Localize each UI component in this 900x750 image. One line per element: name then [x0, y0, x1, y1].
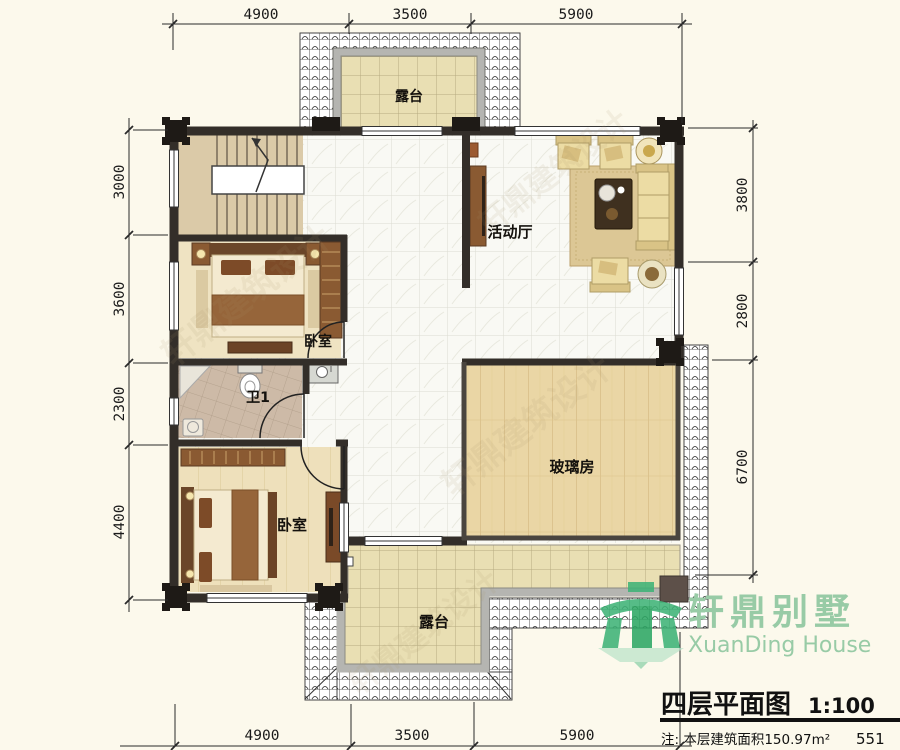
window	[340, 503, 349, 552]
bed-lower	[181, 487, 277, 592]
dim-bottom-3: 5900	[560, 728, 595, 744]
stairwell	[178, 133, 304, 235]
window	[675, 268, 684, 335]
window	[170, 398, 179, 425]
dim-top-1: 4900	[244, 7, 279, 23]
label-activity-hall: 活动厅	[487, 223, 532, 241]
dim-top-2: 3500	[393, 7, 428, 23]
dim-left-3: 2300	[112, 387, 128, 422]
dim-left-1: 3000	[112, 165, 128, 200]
window	[207, 594, 307, 603]
title-underline	[660, 718, 900, 722]
window	[170, 150, 179, 207]
label-bedroom-upper: 卧室	[304, 333, 332, 350]
bathroom	[178, 363, 302, 438]
dim-bottom-2: 3500	[395, 728, 430, 744]
area-note: 注: 本层建筑面积150.97m²	[661, 732, 830, 748]
bedroom-lower	[178, 447, 341, 592]
dim-bottom-1: 4900	[245, 728, 280, 744]
drawing-title: 四层平面图	[661, 690, 791, 720]
planter	[638, 260, 666, 288]
label-terrace-bottom: 露台	[419, 613, 449, 631]
wardrobe-lower	[181, 449, 285, 466]
floor-plan-sheet: 轩鼎建筑设计 轩鼎建筑设计 轩鼎建筑设计 轩鼎建筑设计 露台 活动厅 卧室 卫1…	[0, 0, 900, 750]
label-bathroom: 卫1	[246, 390, 270, 406]
sheet-number: 551	[856, 730, 885, 748]
dim-right-2: 2800	[735, 294, 751, 329]
chimney-block	[660, 576, 688, 602]
tv-cabinet-lower	[326, 492, 341, 562]
drawing-scale: 1:100	[808, 694, 875, 718]
floor-plan-drawing: 轩鼎建筑设计 轩鼎建筑设计 轩鼎建筑设计 轩鼎建筑设计 露台 活动厅 卧室 卫1…	[0, 0, 900, 750]
dim-left-2: 3600	[112, 282, 128, 317]
dim-right-1: 3800	[735, 178, 751, 213]
armchair	[590, 258, 630, 292]
window	[365, 537, 442, 546]
title-block: 四层平面图 1:100 注: 本层建筑面积150.97m² 551	[660, 690, 900, 748]
logo-name-cn: 轩鼎别墅	[688, 592, 856, 633]
stair-landing	[212, 166, 304, 194]
coffee-table	[595, 179, 632, 229]
logo-name-en: XuanDing House	[688, 633, 871, 658]
dim-top-3: 5900	[559, 7, 594, 23]
label-terrace-top: 露台	[395, 88, 423, 105]
bench	[228, 342, 292, 353]
dim-right-3: 6700	[735, 450, 751, 485]
window	[170, 262, 179, 330]
floor-drain-icon	[183, 419, 203, 436]
dim-left-4: 4400	[112, 505, 128, 540]
label-glass-room: 玻璃房	[549, 458, 594, 476]
label-bedroom-lower: 卧室	[277, 516, 307, 534]
terrace-door	[362, 127, 442, 136]
sofa	[636, 164, 680, 250]
